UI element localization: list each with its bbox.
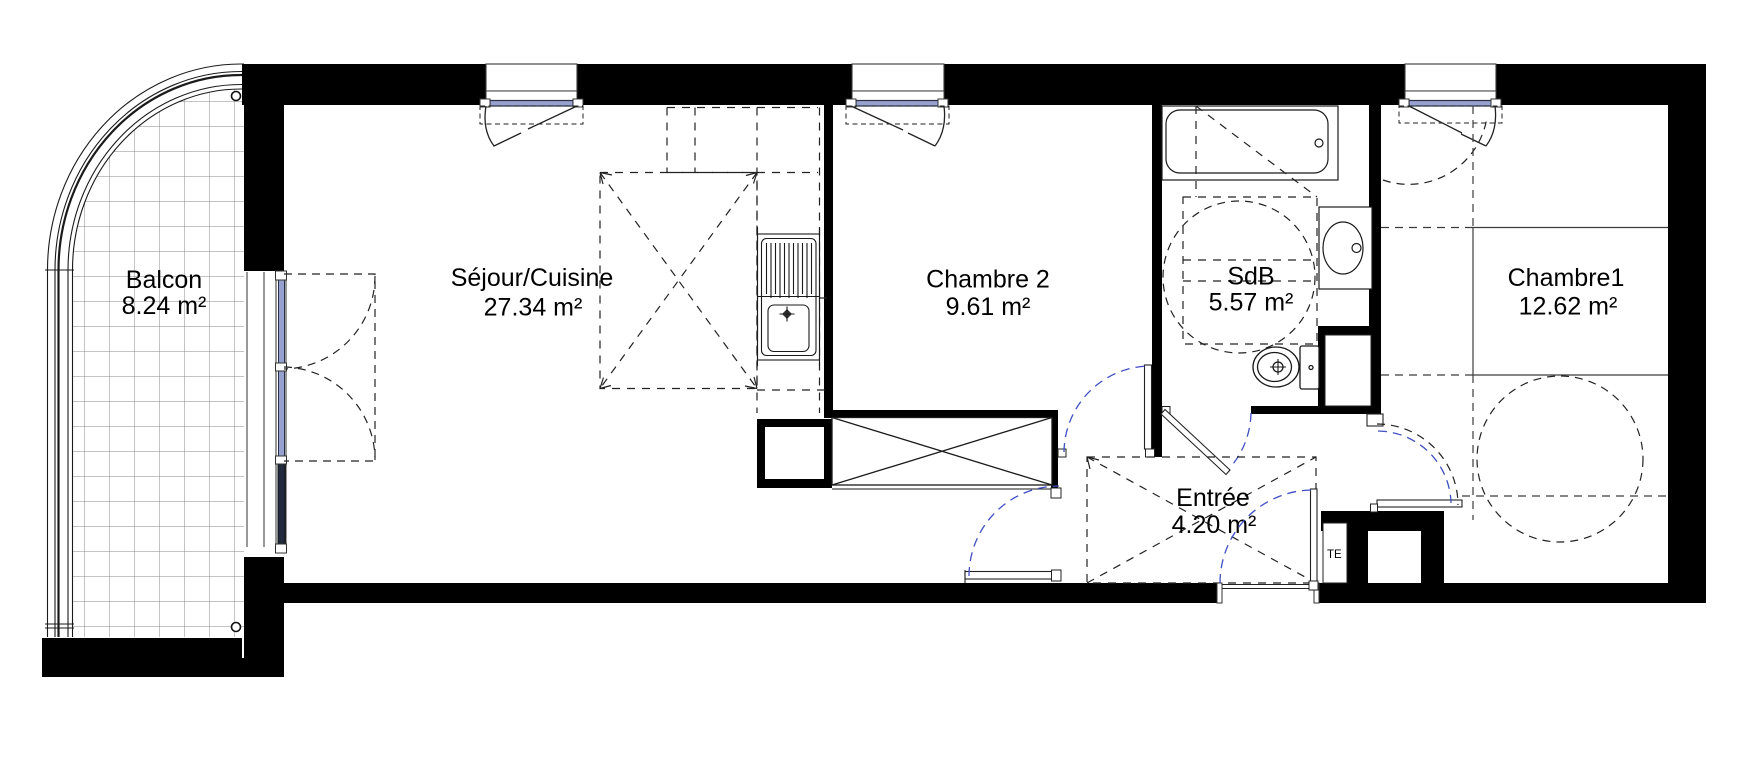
svg-text:8.24 m²: 8.24 m² <box>122 292 207 320</box>
svg-text:SdB: SdB <box>1227 263 1274 291</box>
svg-text:9.61 m²: 9.61 m² <box>946 293 1031 321</box>
svg-text:5.57 m²: 5.57 m² <box>1209 289 1294 317</box>
svg-text:Séjour/Cuisine: Séjour/Cuisine <box>451 264 614 292</box>
svg-text:Chambre 2: Chambre 2 <box>926 266 1050 294</box>
svg-text:TE: TE <box>1327 549 1342 561</box>
svg-text:Balcon: Balcon <box>126 266 202 294</box>
svg-text:Entrée: Entrée <box>1176 484 1250 512</box>
svg-text:12.62 m²: 12.62 m² <box>1519 293 1618 321</box>
svg-text:4.20 m²: 4.20 m² <box>1172 511 1257 539</box>
svg-text:Chambre1: Chambre1 <box>1508 264 1625 292</box>
svg-text:27.34 m²: 27.34 m² <box>484 294 583 322</box>
